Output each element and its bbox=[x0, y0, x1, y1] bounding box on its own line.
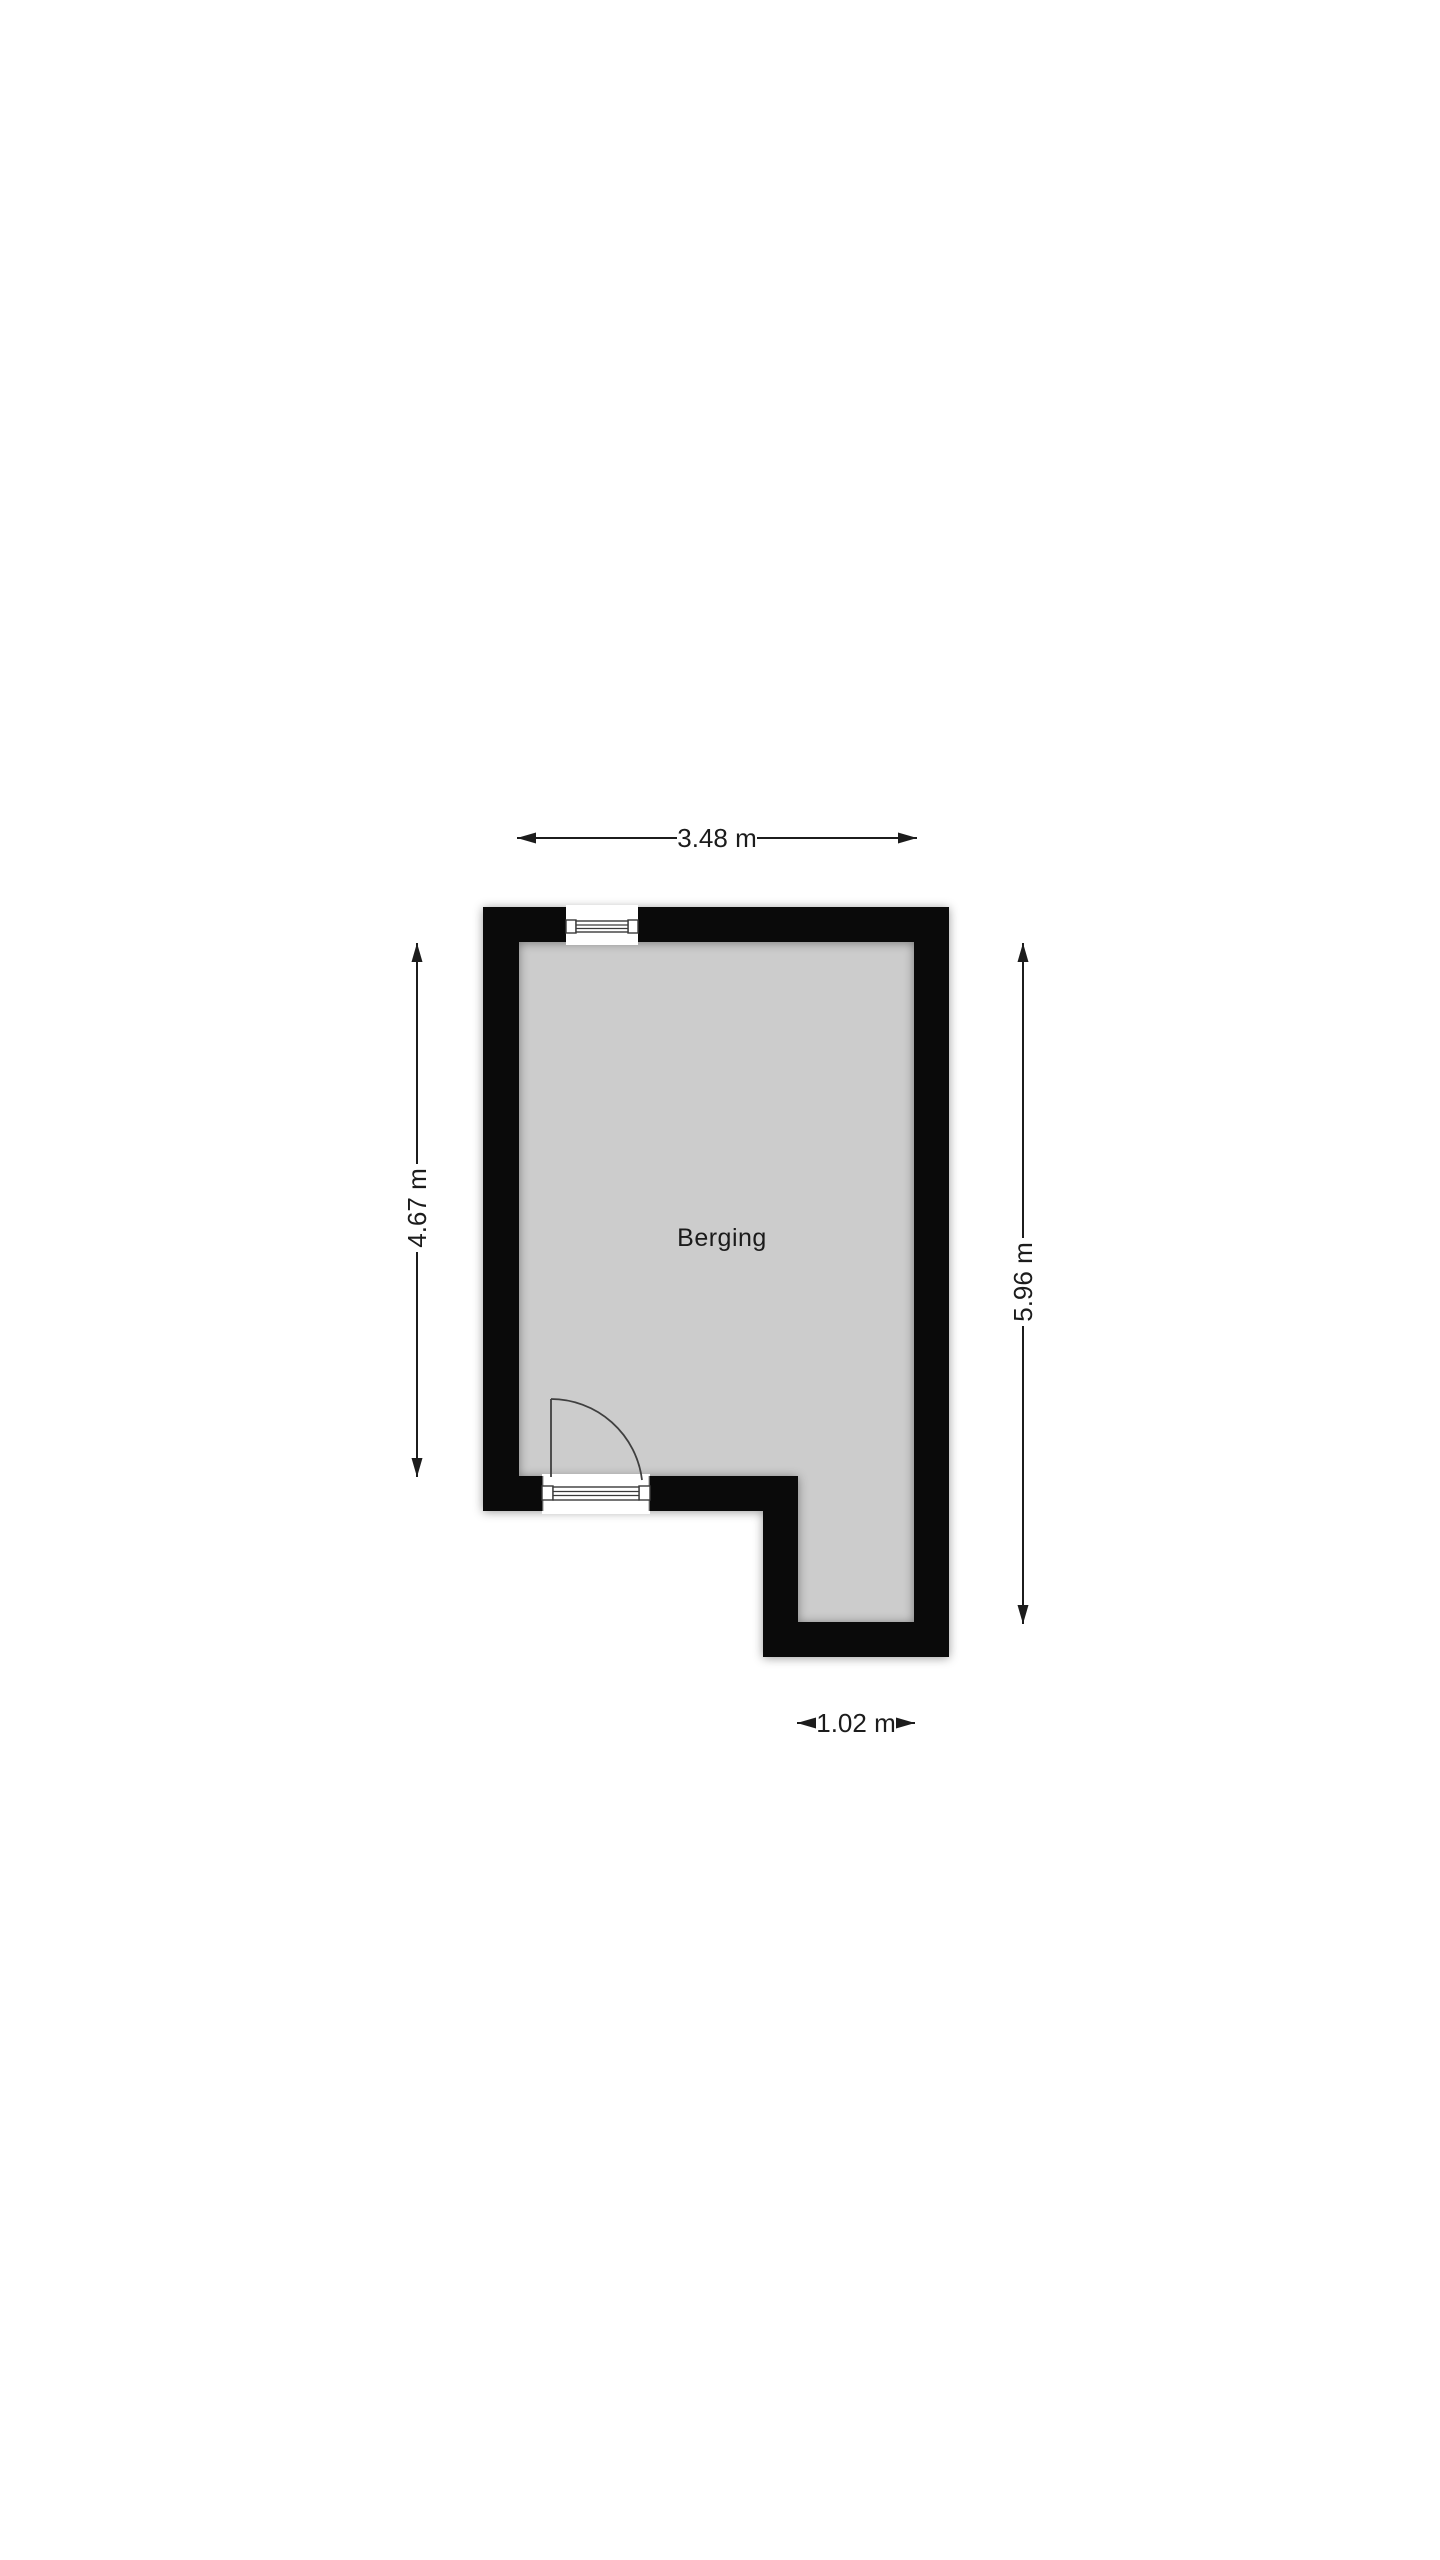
dimension-left: 4.67 m bbox=[402, 943, 432, 1477]
arrow-left-icon bbox=[797, 1718, 816, 1729]
dimension-bottom: 1.02 m bbox=[797, 1708, 915, 1738]
dimension-right: 5.96 m bbox=[1008, 943, 1038, 1624]
window-frame-cap-left bbox=[566, 920, 576, 933]
room-floor-area bbox=[519, 942, 914, 1622]
window-frame-band bbox=[576, 921, 628, 932]
dimension-top: 3.48 m bbox=[517, 823, 917, 853]
door-sill-cap-left bbox=[542, 1486, 553, 1500]
floorplan-page: 3.48 m 4.67 m 5.96 m 1.02 m Berging bbox=[0, 0, 1440, 2560]
arrow-down-icon bbox=[1018, 1605, 1029, 1624]
arrow-right-icon bbox=[896, 1718, 915, 1729]
door-sill-band bbox=[553, 1487, 639, 1500]
dimension-bottom-label: 1.02 m bbox=[816, 1708, 896, 1738]
dimension-top-label: 3.48 m bbox=[677, 823, 757, 853]
dimension-left-label: 4.67 m bbox=[402, 1168, 432, 1248]
floorplan-drawing: 3.48 m 4.67 m 5.96 m 1.02 m Berging bbox=[0, 0, 1440, 2560]
arrow-down-icon bbox=[412, 1458, 423, 1477]
room-label: Berging bbox=[677, 1224, 767, 1252]
dimension-right-label: 5.96 m bbox=[1008, 1242, 1038, 1322]
arrow-up-icon bbox=[1018, 943, 1029, 962]
arrow-right-icon bbox=[898, 833, 917, 844]
window bbox=[566, 905, 638, 945]
arrow-up-icon bbox=[412, 943, 423, 962]
window-frame-cap-right bbox=[628, 920, 638, 933]
arrow-left-icon bbox=[517, 833, 536, 844]
door-sill-cap-right bbox=[639, 1486, 650, 1500]
